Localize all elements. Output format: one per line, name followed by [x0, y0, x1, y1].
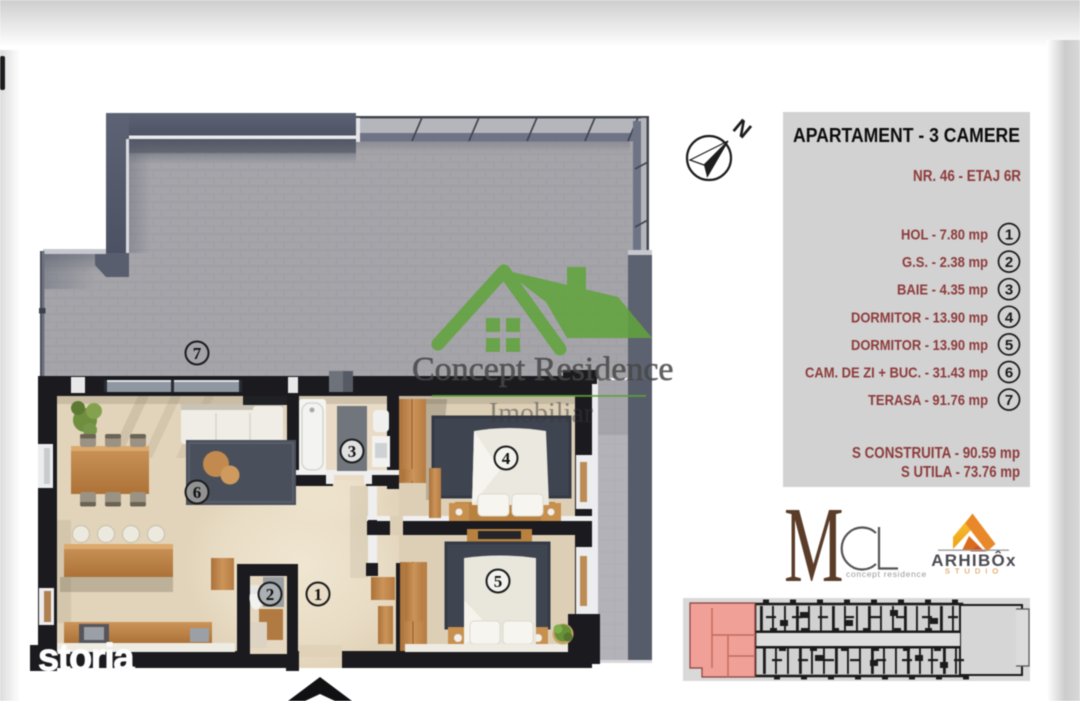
svg-text:DORMITOR - 13.90 mp: DORMITOR - 13.90 mp: [851, 337, 988, 354]
svg-text:7: 7: [1005, 392, 1013, 409]
svg-text:6: 6: [1005, 365, 1013, 382]
svg-text:BAIE - 4.35 mp: BAIE - 4.35 mp: [897, 282, 988, 299]
svg-text:5: 5: [494, 572, 503, 591]
svg-text:STUDIO: STUDIO: [945, 567, 1003, 576]
svg-text:3: 3: [1005, 282, 1013, 299]
svg-text:1: 1: [1005, 227, 1013, 244]
svg-text:storia: storia: [38, 637, 135, 679]
svg-text:CAM. DE ZI + BUC. - 31.43 mp: CAM. DE ZI + BUC. - 31.43 mp: [805, 365, 988, 382]
svg-text:DORMITOR - 13.90 mp: DORMITOR - 13.90 mp: [851, 309, 988, 326]
svg-text:S CONSTRUITA - 90.59 mp: S CONSTRUITA - 90.59 mp: [852, 445, 1020, 462]
svg-text:2: 2: [266, 585, 275, 604]
svg-text:G.S. - 2.38 mp: G.S. - 2.38 mp: [902, 254, 988, 271]
svg-text:HOL - 7.80 mp: HOL - 7.80 mp: [901, 227, 988, 244]
svg-text:TERASA - 91.76 mp: TERASA - 91.76 mp: [868, 392, 988, 409]
svg-text:Concept Residence: Concept Residence: [412, 351, 674, 388]
svg-text:6: 6: [193, 483, 202, 502]
svg-text:Imobiliar: Imobiliar: [489, 398, 594, 429]
svg-text:S UTILA - 73.76 mp: S UTILA - 73.76 mp: [901, 464, 1020, 481]
svg-text:4: 4: [502, 449, 511, 468]
svg-text:5: 5: [1005, 337, 1013, 354]
svg-text:4: 4: [1005, 309, 1014, 326]
svg-text:2: 2: [1005, 254, 1013, 271]
svg-text:M: M: [784, 486, 844, 605]
svg-text:3: 3: [348, 442, 357, 461]
svg-text:concept residence: concept residence: [846, 569, 927, 579]
svg-text:1: 1: [314, 585, 323, 604]
svg-text:7: 7: [193, 344, 202, 363]
svg-text:NR. 46 - ETAJ 6R: NR. 46 - ETAJ 6R: [913, 168, 1021, 185]
svg-text:APARTAMENT - 3 CAMERE: APARTAMENT - 3 CAMERE: [793, 125, 1020, 147]
